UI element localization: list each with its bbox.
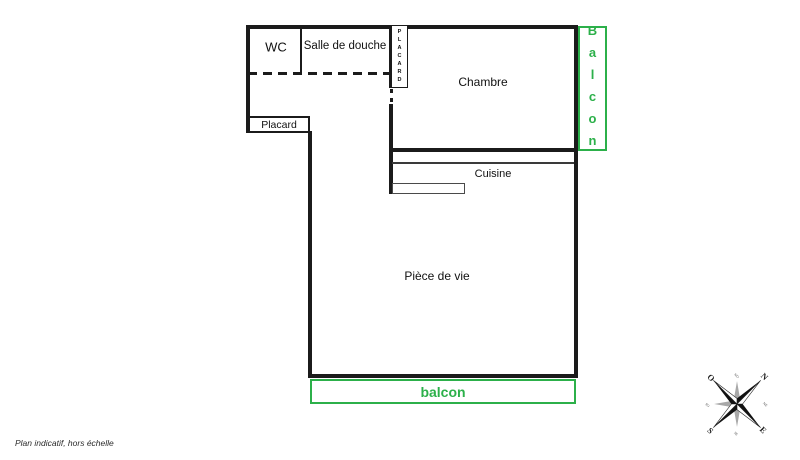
compass-main-e-black [737,401,763,427]
room-label-bedroom: Chambre [458,75,507,89]
balcony-right-box: Balcon [578,26,607,151]
closet-hall-label: Placard [261,119,297,131]
wall-living-left [308,131,312,378]
room-label-living: Pièce de vie [404,269,469,283]
wall-top [246,25,578,29]
wall-wc-divider [300,25,302,74]
wall-bedroom-bottom [389,148,578,152]
closet-top-label: PLACARD [397,29,403,85]
room-label-shower: Salle de douche [304,40,386,52]
balcony-right-label: Balcon [585,23,600,155]
compass-label-se: SE [733,431,739,437]
wall-bottom [308,374,578,378]
kitchen-counter-box [392,183,465,194]
room-label-kitchen: Cuisine [475,168,512,180]
wall-bath-dashed-doors [248,72,391,75]
footnote: Plan indicatif, hors échelle [15,438,114,448]
compass-rose: N E S O NO NE SE SO [693,360,781,448]
balcony-bottom-label: balcon [420,384,465,400]
closet-hall-box: Placard [248,116,310,133]
compass-label-s: S [705,426,715,436]
compass-label-no: NO [733,373,740,380]
balcony-bottom-box: balcon [310,379,576,404]
room-label-wc: WC [265,40,287,55]
closet-top-box: PLACARD [391,25,408,88]
wall-bedroom-door-dashed [390,89,393,105]
kitchen-counter-line [392,162,574,164]
compass-label-ne: NE [762,401,769,408]
floor-plan-canvas: Placard PLACARD Balcon balcon WC Salle d… [0,0,800,460]
compass-label-so: SO [704,402,710,408]
compass-main-n-white [737,380,763,406]
